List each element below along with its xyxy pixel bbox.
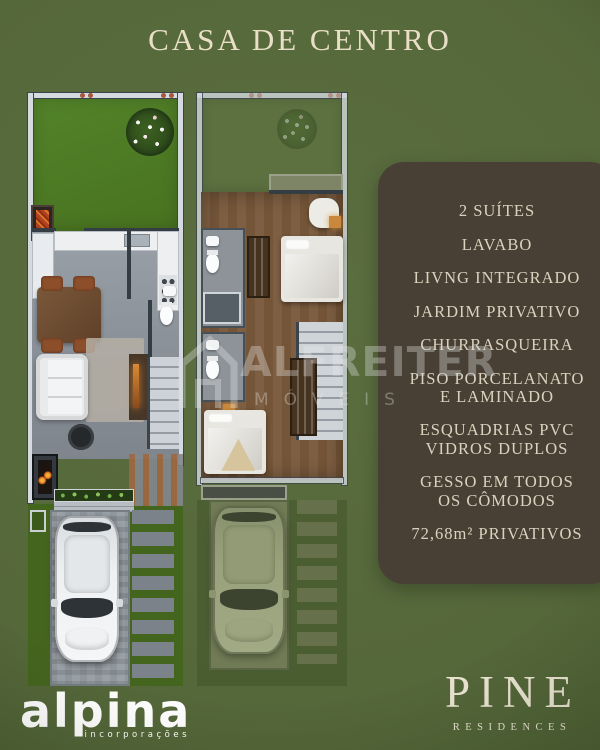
car-windshield — [220, 589, 278, 610]
car-rear-glass — [222, 512, 277, 522]
pine-logo-name: PINE — [436, 668, 590, 718]
bed-throw — [221, 439, 255, 471]
feature-item: 72,68m² PRIVATIVOS — [411, 525, 582, 543]
bathroom-sink — [206, 236, 219, 246]
poster: CASA DE CENTRO — [0, 0, 600, 750]
dining-chair — [41, 276, 63, 291]
lavabo-wall — [148, 300, 152, 357]
entry-planter — [54, 489, 134, 502]
white-car — [55, 516, 119, 662]
floor-plan-upper — [197, 86, 347, 686]
kitchen-partition-wall — [127, 231, 131, 299]
page-title: CASA DE CENTRO — [0, 22, 600, 58]
car-hood — [225, 618, 274, 642]
feature-item: PISO PORCELANATO E LAMINADO — [410, 370, 585, 407]
car-mirror — [209, 590, 216, 597]
car-roof — [223, 525, 275, 584]
feature-item: LIVNG INTEGRADO — [414, 269, 581, 287]
gate-hinge — [80, 93, 85, 98]
feature-item: CHURRASQUEIRA — [420, 336, 573, 354]
feature-item: LAVABO — [462, 236, 533, 254]
pine-logo-subtitle: RESIDENCES — [434, 722, 590, 733]
bathroom-sink — [206, 340, 219, 350]
gate-hinge — [161, 93, 166, 98]
lavabo-toilet — [160, 306, 173, 325]
bathroom-toilet — [206, 360, 219, 379]
feature-item: GESSO EM TODOS OS CÔMODOS — [420, 473, 574, 510]
gate-hinge — [88, 93, 93, 98]
front-planter-box — [30, 510, 46, 532]
dining-table — [37, 287, 101, 343]
bathroom-suite-1 — [201, 228, 245, 328]
gate-hinge — [336, 93, 341, 98]
suite1-wall — [269, 190, 343, 194]
dining-chair — [41, 338, 63, 353]
wall-top — [28, 93, 183, 98]
car-rear-glass — [63, 522, 112, 532]
wall-bottom — [201, 478, 343, 483]
car-mirror — [116, 599, 122, 606]
gate-hinge — [249, 93, 254, 98]
car-roof — [64, 535, 110, 593]
sofa — [36, 354, 88, 420]
stepping-stones-faded — [297, 500, 337, 664]
wardrobe-hall — [290, 358, 317, 436]
stepping-stones — [132, 510, 174, 678]
shower — [203, 292, 241, 324]
feature-item: JARDIM PRIVATIVO — [414, 303, 581, 321]
bathroom-suite-2 — [201, 332, 245, 402]
coffee-table — [68, 424, 94, 450]
feature-item: 2 SUÍTES — [459, 202, 535, 220]
staircase-ground — [147, 357, 179, 449]
side-deck-pergola — [129, 454, 183, 506]
garden-bush — [126, 108, 174, 156]
tv-panel — [129, 354, 148, 420]
car-mirror — [282, 590, 289, 597]
car-mirror — [51, 599, 57, 606]
bed-suite-2 — [204, 410, 266, 474]
bed-suite-1 — [281, 236, 343, 302]
pine-logo: PINE RESIDENCES — [430, 668, 590, 733]
floor-plan-ground — [28, 86, 183, 686]
gate-hinge — [257, 93, 262, 98]
front-balcony — [201, 485, 287, 500]
alpina-logo-name: alpina — [20, 688, 192, 734]
gate-hinge — [328, 93, 333, 98]
gate-hinge — [169, 93, 174, 98]
car-hood — [65, 627, 109, 650]
bathroom-toilet — [206, 254, 219, 273]
garden-bush-faint — [277, 109, 317, 149]
alpina-logo: alpina incorporações — [20, 688, 192, 740]
house-front-wall — [32, 228, 56, 232]
wall-top — [197, 93, 347, 98]
feature-item: ESQUADRIAS PVC VIDROS DUPLOS — [420, 421, 575, 458]
dining-chair — [73, 276, 95, 291]
features-panel: 2 SUÍTES LAVABO LIVNG INTEGRADO JARDIM P… — [378, 162, 600, 584]
wardrobe-suite-1 — [247, 236, 270, 298]
car-windshield — [61, 598, 112, 618]
lavabo-sink — [163, 286, 176, 296]
faded-car — [213, 506, 285, 654]
nightstand-lamp — [329, 216, 341, 228]
